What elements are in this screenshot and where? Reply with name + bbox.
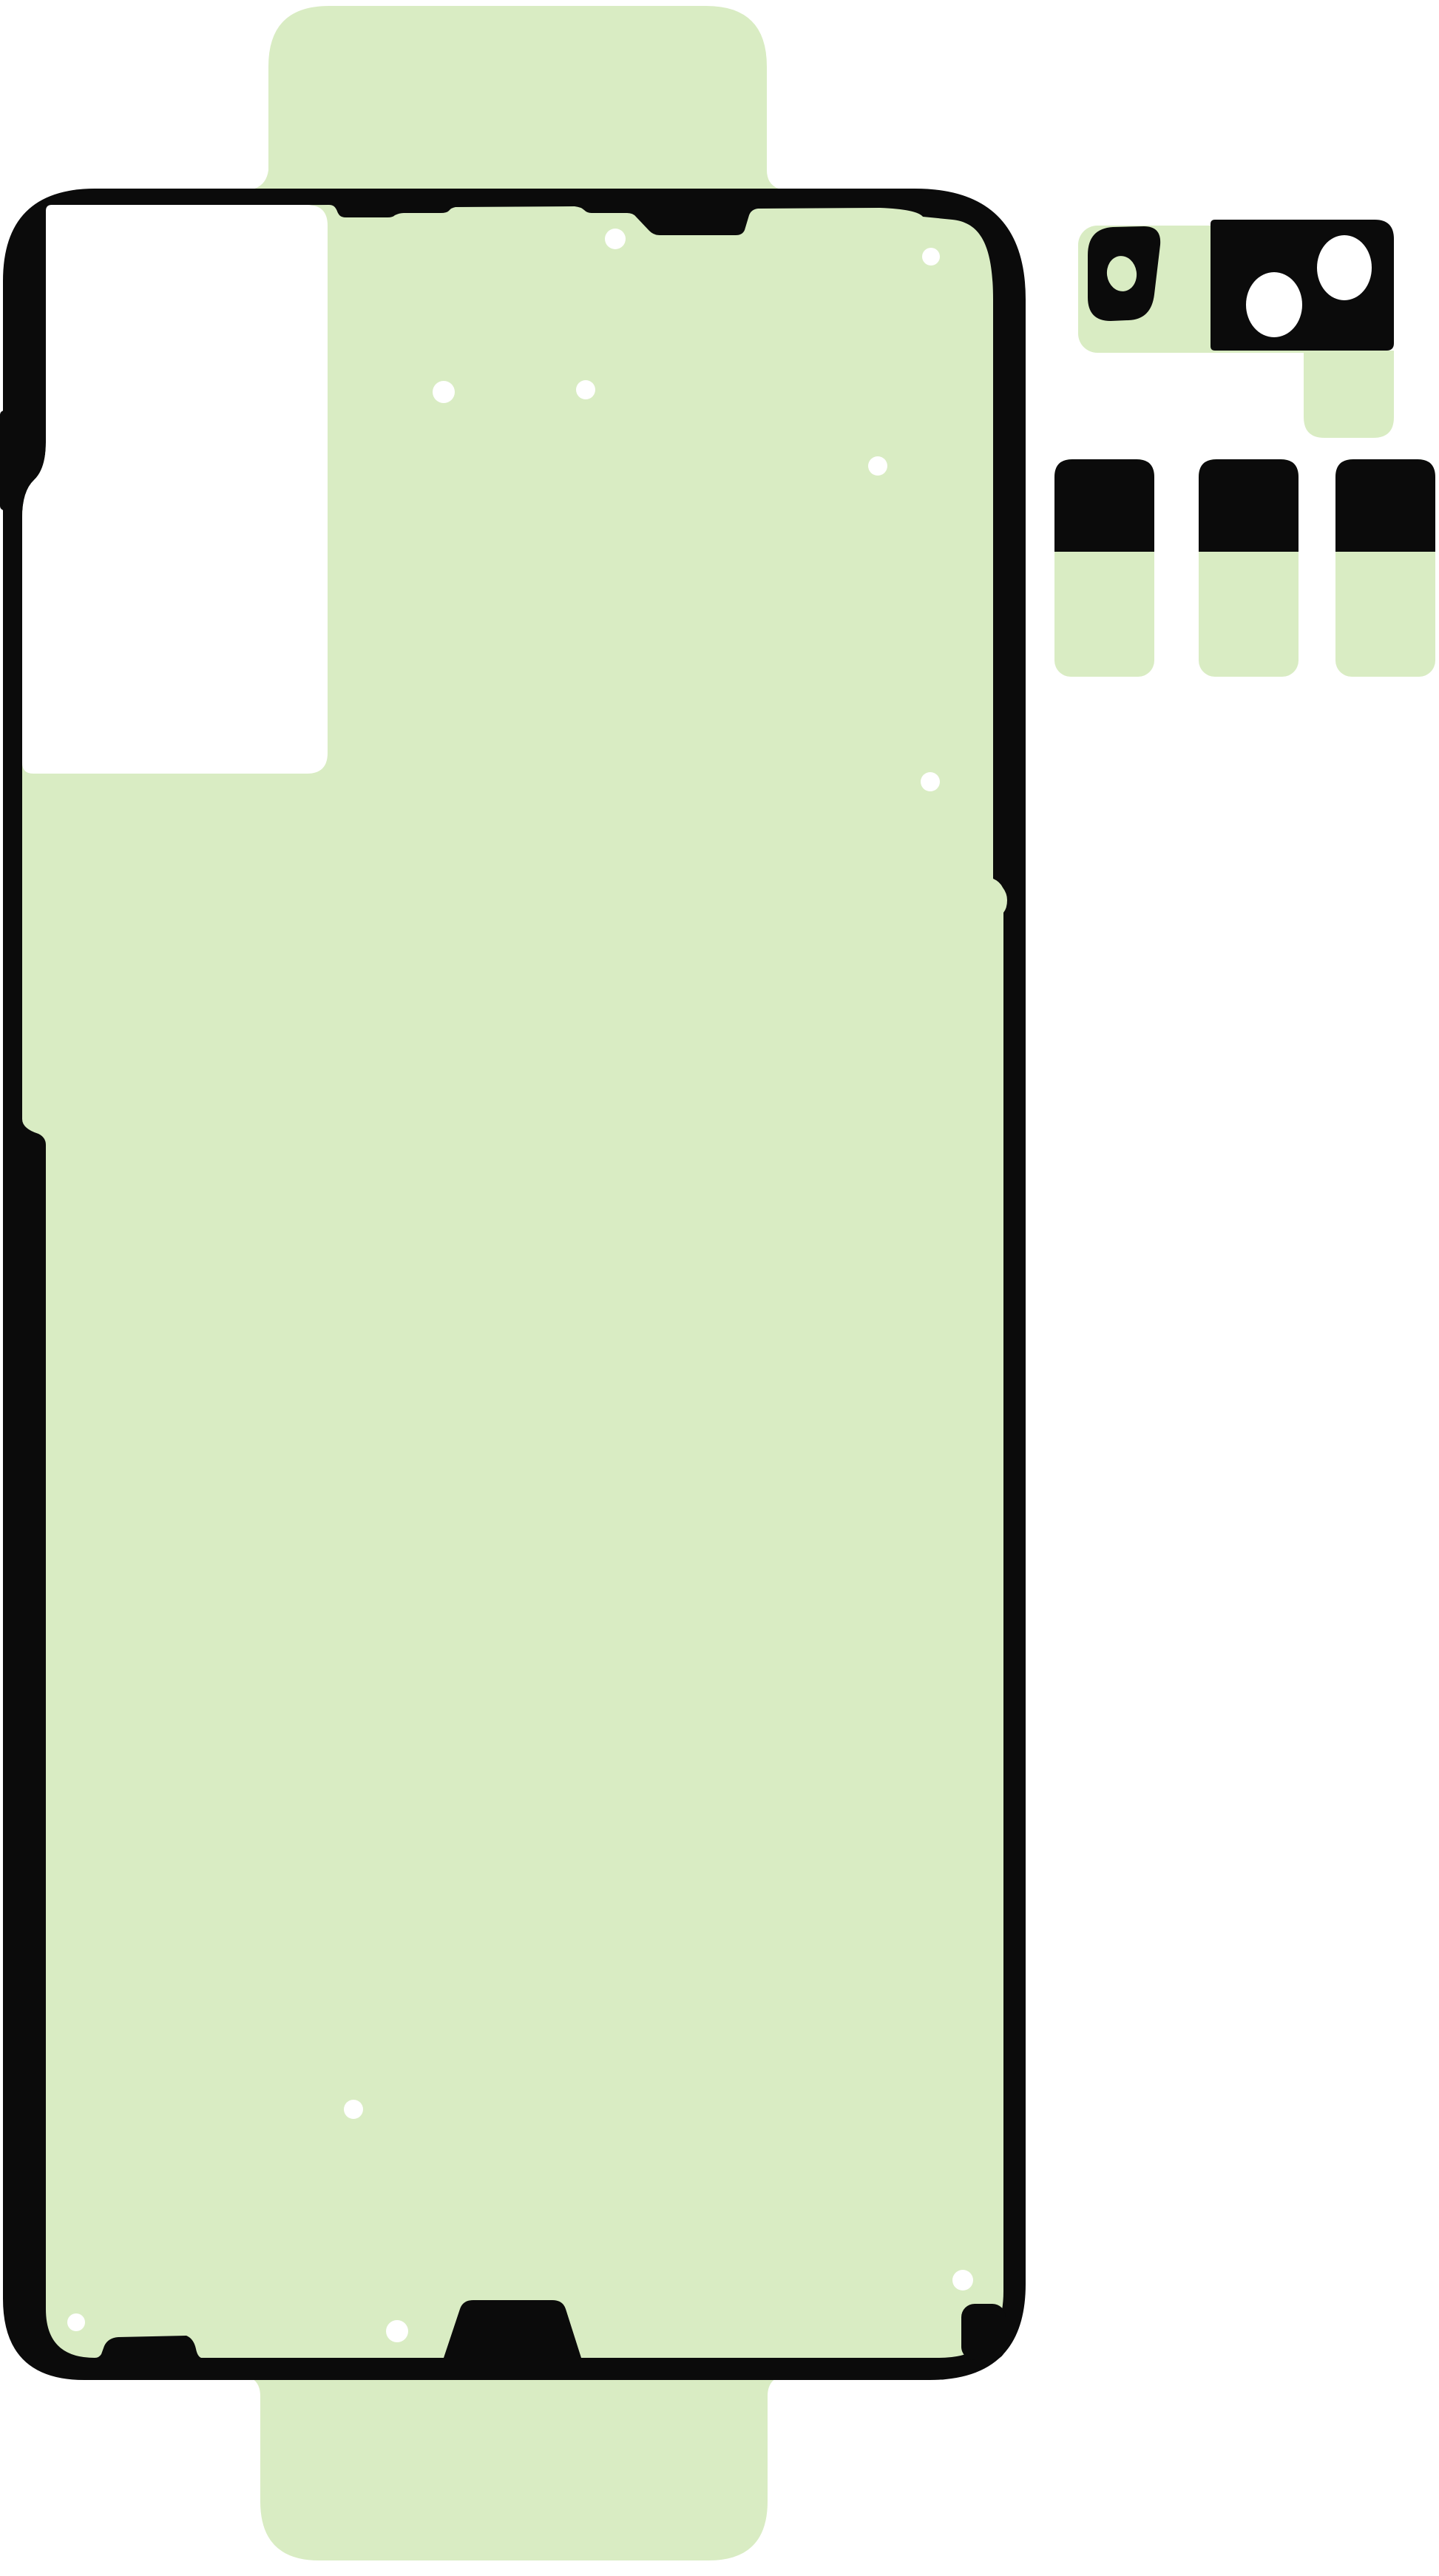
alignment-hole-2 xyxy=(576,380,595,399)
alignment-hole-10 xyxy=(952,2270,973,2291)
pull-tab-strip-1 xyxy=(1054,459,1154,677)
outline-bottom-right-step xyxy=(961,2304,1006,2360)
lens-hole-1 xyxy=(1246,272,1302,337)
strip-3-adhesive xyxy=(1335,459,1435,552)
pull-tab-strip-3 xyxy=(1335,459,1435,677)
alignment-hole-9 xyxy=(386,2320,408,2342)
back-cover-adhesive xyxy=(0,6,1026,2560)
strip-2-adhesive xyxy=(1199,459,1299,552)
alignment-hole-4 xyxy=(922,248,940,266)
alignment-hole-7 xyxy=(344,2100,363,2119)
alignment-hole-5 xyxy=(868,456,887,476)
alignment-hole-1 xyxy=(433,381,455,403)
alignment-hole-3 xyxy=(605,229,626,249)
display-cutout-liner xyxy=(22,205,328,774)
alignment-hole-8 xyxy=(67,2313,85,2331)
liner-bottom-tab xyxy=(244,2376,784,2560)
lens-hole-2 xyxy=(1317,235,1372,300)
alignment-hole-6 xyxy=(921,772,940,791)
pull-tab-strip-2 xyxy=(1199,459,1299,677)
product-illustration xyxy=(0,0,1439,2576)
liner-top-tab xyxy=(249,6,784,190)
strip-1-adhesive xyxy=(1054,459,1154,552)
camera-liner-lower-tab xyxy=(1304,351,1394,438)
outline-left-edge-bump xyxy=(0,410,9,510)
